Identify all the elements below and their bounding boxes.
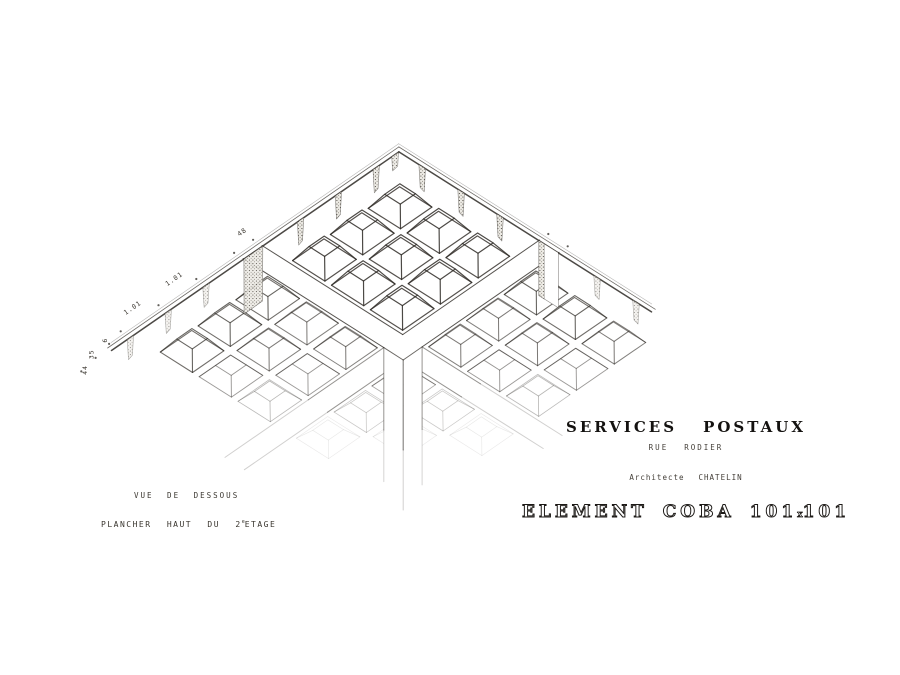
address-word-1: RUE <box>649 443 669 452</box>
dimension-tick-dot <box>120 330 122 332</box>
dimension-tick-dot <box>547 233 549 235</box>
caption-floor-prefix: PLANCHER HAUT DU 2 <box>101 520 242 529</box>
dim-section-1: 6 <box>101 338 109 343</box>
address-word-2: RODIER <box>684 443 723 452</box>
element-size-a: 101 <box>750 502 798 522</box>
project-address: RUE RODIER <box>558 443 814 452</box>
drawing-sheet: 1.011.014863544 VUE DE DESSOUS PLANCHER … <box>0 0 900 675</box>
project-title: SERVICES POSTAUX <box>558 418 814 436</box>
caption-floor-suffix: ETAGE <box>245 520 277 529</box>
element-reference-line: ELEMENT COBA 101x101 <box>558 502 814 522</box>
dimension-tick-dot <box>157 304 159 306</box>
element-system-name: COBA <box>663 502 735 522</box>
element-word: ELEMENT <box>522 502 648 522</box>
architect-line: Architecte CHATELIN <box>558 473 814 482</box>
project-word-1: SERVICES <box>566 418 677 436</box>
architect-name: CHATELIN <box>699 473 743 482</box>
element-size-b: 101 <box>803 502 851 522</box>
axonometric-waffle-slab-drawing: 1.011.014863544 <box>0 0 900 675</box>
architect-label: Architecte <box>629 473 684 482</box>
element-size: 101x101 <box>750 502 850 522</box>
dimension-tick-dot <box>567 245 569 247</box>
dim-section-2: 35 <box>88 349 96 359</box>
dimension-tick-dot <box>233 252 235 254</box>
caption-view-label: VUE DE DESSOUS <box>134 491 239 500</box>
dim-module-2: 1.01 <box>122 299 143 317</box>
dim-section-3: 44 <box>81 365 89 375</box>
dimension-tick-dot <box>252 239 254 241</box>
dim-module-1: 1.01 <box>164 270 185 288</box>
dim-beam-width: 48 <box>236 226 249 238</box>
dimension-tick-dot <box>195 278 197 280</box>
caption-floor-label: PLANCHER HAUT DU 2eETAGE <box>101 519 276 529</box>
title-block: SERVICES POSTAUX RUE RODIER Architecte C… <box>558 418 814 522</box>
project-word-2: POSTAUX <box>703 418 806 436</box>
